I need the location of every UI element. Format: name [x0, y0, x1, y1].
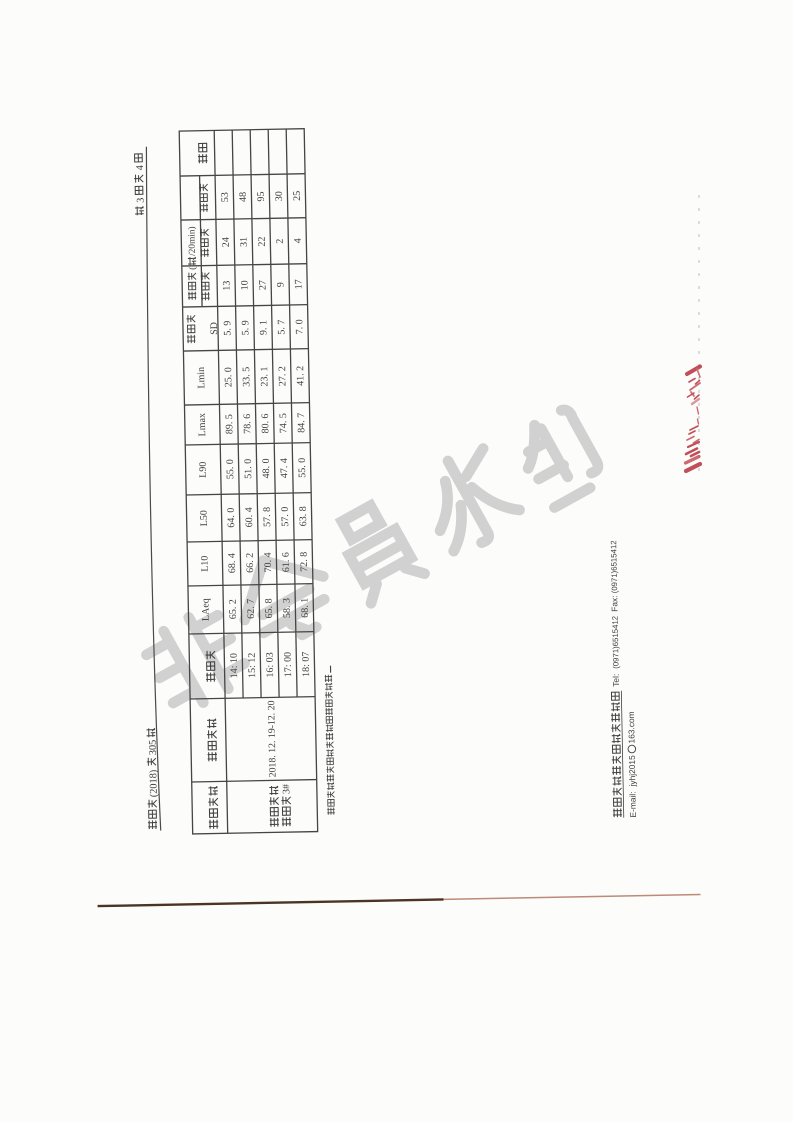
svg-text:48. 0: 48. 0: [261, 458, 272, 478]
svg-text:60. 4: 60. 4: [244, 507, 255, 527]
svg-text:23. 1: 23. 1: [259, 366, 270, 386]
svg-text:3: 3: [135, 198, 146, 203]
svg-text:53: 53: [220, 192, 231, 202]
svg-text:9: 9: [276, 282, 287, 287]
svg-text:74. 5: 74. 5: [278, 413, 289, 433]
svg-text:L90: L90: [198, 462, 209, 478]
svg-text:(0971)6515412: (0971)6515412: [611, 616, 621, 669]
svg-text:5. 7: 5. 7: [276, 320, 287, 335]
svg-text:13: 13: [221, 281, 232, 291]
svg-text:22: 22: [257, 236, 268, 246]
svg-text:84. 7: 84. 7: [296, 413, 307, 433]
svg-text:57. 8: 57. 8: [262, 507, 273, 527]
svg-text:163.com: 163.com: [626, 711, 637, 743]
svg-text:9. 1: 9. 1: [258, 320, 269, 335]
svg-text:72. 8: 72. 8: [299, 552, 310, 572]
svg-text:10: 10: [239, 280, 250, 290]
svg-text:(: (: [187, 267, 198, 270]
svg-text:65. 8: 65. 8: [264, 598, 275, 618]
svg-text:E-mail:: E-mail:: [627, 791, 637, 817]
svg-text:27. 2: 27. 2: [277, 366, 288, 386]
svg-text:Lmax: Lmax: [197, 413, 208, 437]
svg-text:68. 1: 68. 1: [300, 598, 311, 618]
svg-text:62. 7: 62. 7: [246, 599, 257, 619]
svg-text:17: 00: 17: 00: [283, 652, 294, 677]
svg-text:55. 0: 55. 0: [297, 458, 308, 478]
svg-text:78. 6: 78. 6: [242, 414, 253, 434]
svg-text:68. 4: 68. 4: [227, 553, 238, 573]
svg-text:2: 2: [275, 239, 286, 244]
svg-text:15: 12: 15: 12: [247, 653, 258, 678]
svg-text:48: 48: [238, 192, 249, 202]
svg-text:27: 27: [257, 280, 268, 290]
svg-text:4: 4: [293, 238, 304, 243]
svg-text:66. 2: 66. 2: [245, 553, 256, 573]
svg-text:7. 0: 7. 0: [294, 319, 305, 334]
svg-text:41. 2: 41. 2: [295, 366, 306, 386]
svg-text:58. 3: 58. 3: [282, 598, 293, 618]
svg-text:LAeq: LAeq: [200, 598, 211, 621]
svg-text:(0971)6515412: (0971)6515412: [609, 540, 619, 593]
svg-text:18: 07: 18: 07: [301, 652, 312, 677]
svg-text:L50: L50: [199, 510, 210, 526]
svg-text:30: 30: [274, 191, 285, 201]
svg-text:2018. 12. 19-12. 20: 2018. 12. 19-12. 20: [266, 700, 278, 777]
svg-text:70. 4: 70. 4: [263, 552, 274, 572]
svg-text:3#: 3#: [281, 784, 292, 794]
svg-text:64. 0: 64. 0: [226, 508, 237, 528]
svg-text:24: 24: [221, 237, 232, 247]
svg-text:5. 9: 5. 9: [240, 320, 251, 335]
svg-text:65. 2: 65. 2: [228, 599, 239, 619]
svg-text:33. 5: 33. 5: [241, 367, 252, 387]
svg-text:17: 17: [293, 279, 304, 289]
svg-text:14: 10: 14: 10: [229, 653, 240, 678]
svg-text:Tel:: Tel:: [611, 674, 621, 687]
svg-text:Lmin: Lmin: [196, 367, 207, 389]
svg-text:4: 4: [135, 165, 146, 170]
svg-text:5. 9: 5. 9: [222, 321, 233, 336]
svg-text:55. 0: 55. 0: [225, 459, 236, 479]
svg-text:51. 0: 51. 0: [243, 459, 254, 479]
svg-text:80. 6: 80. 6: [260, 413, 271, 433]
svg-text:57. 0: 57. 0: [280, 507, 291, 527]
svg-text:jyhj2015: jyhj2015: [627, 755, 638, 788]
svg-text:95: 95: [256, 191, 267, 201]
svg-text:/20min): /20min): [186, 226, 198, 256]
svg-text:63. 8: 63. 8: [298, 506, 309, 526]
svg-text:25. 0: 25. 0: [223, 367, 234, 387]
svg-text:61. 6: 61. 6: [281, 552, 292, 572]
svg-text:16: 03: 16: 03: [265, 652, 276, 677]
svg-text:31: 31: [239, 237, 250, 247]
svg-text:47. 4: 47. 4: [279, 458, 290, 478]
svg-text:L10: L10: [200, 556, 211, 572]
svg-text:SD: SD: [209, 322, 220, 335]
svg-text:25: 25: [292, 191, 303, 201]
svg-text:Fax:: Fax:: [609, 595, 619, 611]
svg-text:89. 5: 89. 5: [224, 414, 235, 434]
